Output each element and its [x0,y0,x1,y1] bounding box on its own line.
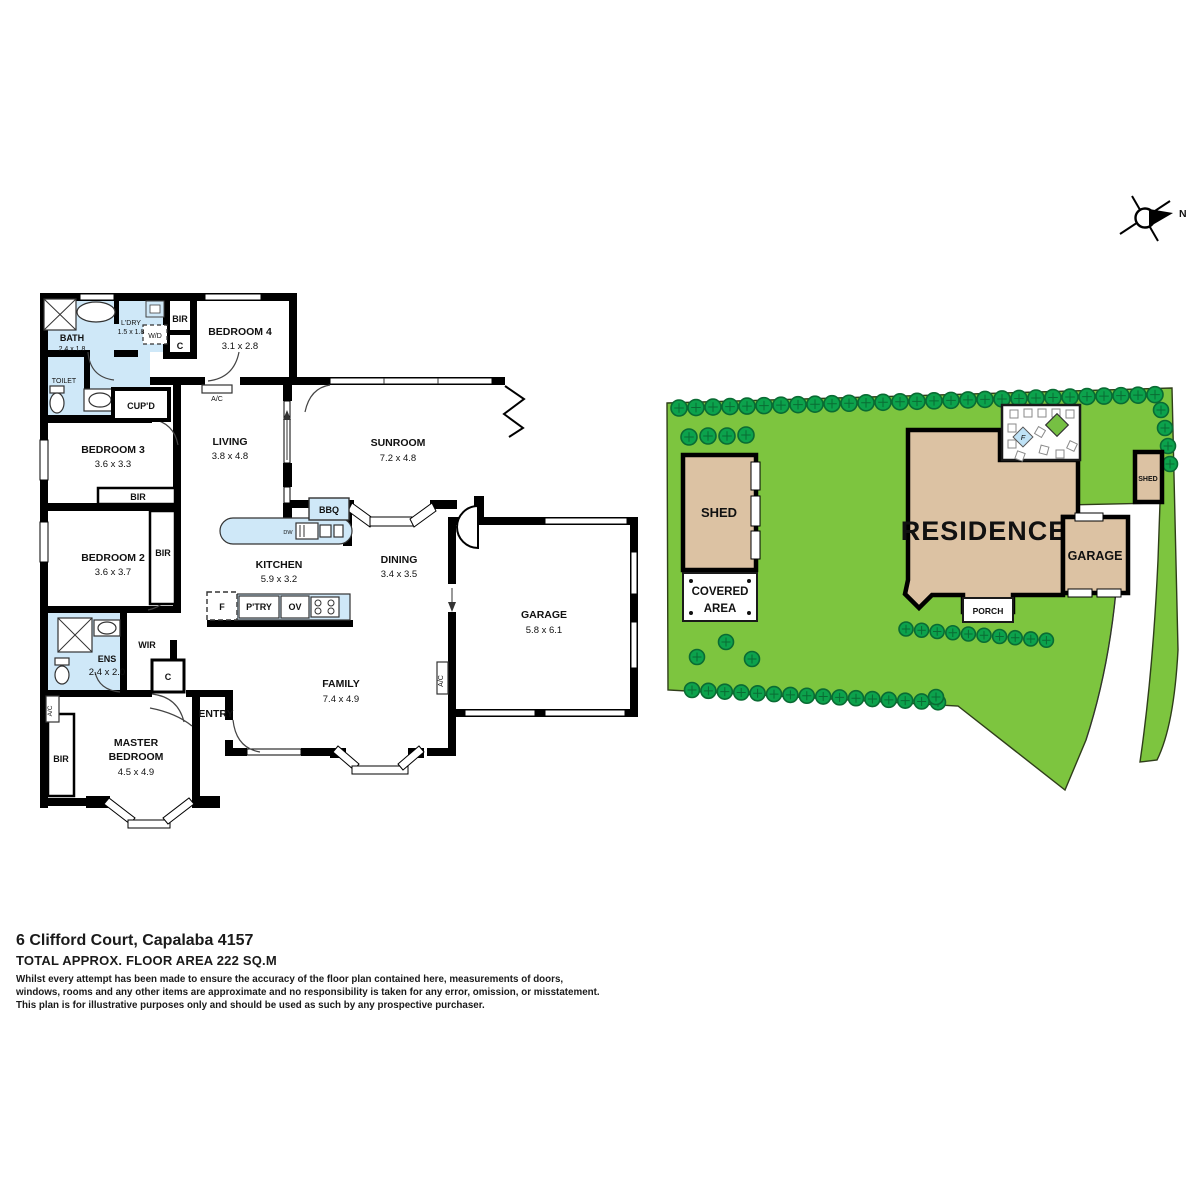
site-courtyard: F [1002,405,1080,461]
covered-area-label-1: COVERED [692,586,749,598]
site-shed-label: SHED [701,505,737,520]
bath-shower [44,299,76,330]
bed3-dims: 3.6 x 3.3 [95,459,131,470]
ac-unit-bed4 [202,385,232,393]
c2-label: C [165,672,172,682]
covered-area-label-2: AREA [704,603,737,615]
laundry-tub [146,301,164,317]
floor-plan: BATH 2.4 x 1.8 L'DRY 1.5 x 1.8 W/D BIR C… [40,293,638,828]
disclaimer-line-2: windows, rooms and any other items are a… [16,987,716,1000]
site-porch-label: PORCH [973,606,1004,616]
bathtub [77,302,115,322]
bed3-label: BEDROOM 3 [81,444,145,456]
compass-north-label: N [1179,208,1187,220]
c1-label: C [177,341,184,351]
ov-label: OV [288,602,301,612]
compass-needle [1149,209,1173,227]
ens-label: ENS [98,654,117,664]
toilet-label: TOILET [52,378,77,385]
bir1-label: BIR [172,314,188,324]
fridge-label: F [219,602,225,612]
floorplan-page: SHED COVERED AREA RESIDENCE F [0,0,1200,1200]
family-label: FAMILY [322,678,360,690]
master-dims: 4.5 x 4.9 [118,767,154,778]
disclaimer-line-1: Whilst every attempt has been made to en… [16,974,716,987]
cupd-label: CUP'D [127,401,155,411]
ldry-dims: 1.5 x 1.8 [118,329,145,336]
floor-area-text: TOTAL APPROX. FLOOR AREA 222 SQ.M [16,953,716,968]
dining-label: DINING [381,554,418,566]
bir3-label: BIR [155,548,171,558]
bath-label: BATH [60,333,84,343]
wir-label: WIR [138,640,156,650]
site-garage-label: GARAGE [1068,549,1123,563]
toilet-fixture [50,386,64,413]
garage-label: GARAGE [521,609,567,621]
site-plan: SHED COVERED AREA RESIDENCE F [667,387,1178,790]
kitchen-dims: 5.9 x 3.2 [261,574,297,585]
wd-label: W/D [148,333,162,340]
dining-door [457,506,478,548]
cooktop [311,597,339,617]
break-line [504,386,524,437]
ptry-label: P'TRY [246,602,272,612]
bir4-label: BIR [53,754,69,764]
bath-dims: 2.4 x 1.8 [59,346,86,353]
living-dims: 3.8 x 4.8 [212,451,248,462]
sunroom-dims: 7.2 x 4.8 [380,453,416,464]
bed4-dims: 3.1 x 2.8 [222,341,258,352]
ens-shower [58,618,92,652]
living-label: LIVING [212,436,247,448]
dw-label: DW [283,530,293,536]
bbq-label: BBQ [319,505,339,515]
bed2-label: BEDROOM 2 [81,552,145,564]
site-shed-small-label: SHED [1138,476,1157,483]
compass: N [1120,196,1187,241]
family-dims: 7.4 x 4.9 [323,694,359,705]
dining-dims: 3.4 x 3.5 [381,569,417,580]
fountain-label: F [1021,433,1026,442]
bed2-dims: 3.6 x 3.7 [95,567,131,578]
ldry-label: L'DRY [121,320,141,327]
disclaimer-line-3: This plan is for illustrative purposes o… [16,1000,716,1013]
bed4-label: BEDROOM 4 [208,326,272,338]
master-label-1: MASTER [114,737,159,749]
garage-dims: 5.8 x 6.1 [526,625,562,636]
master-label-2: BEDROOM [109,751,164,763]
ac-garage-label: A/C [438,675,445,687]
site-residence-label: RESIDENCE [901,516,1068,546]
ens-basin [94,620,120,636]
ens-dims: 2.4 x 2.0 [89,667,125,678]
address-title: 6 Clifford Court, Capalaba 4157 [16,932,716,950]
plan-graphics: SHED COVERED AREA RESIDENCE F [0,0,1200,1200]
ac-master-label: A/C [47,705,54,716]
kitchen-label: KITCHEN [256,559,303,571]
ac-bed4-label: A/C [211,396,223,403]
footer: 6 Clifford Court, Capalaba 4157 TOTAL AP… [16,932,716,1013]
sunroom-label: SUNROOM [371,437,426,449]
entry-label: ENTRY [198,708,233,720]
bir2-label: BIR [130,492,146,502]
ens-toilet [55,658,69,684]
